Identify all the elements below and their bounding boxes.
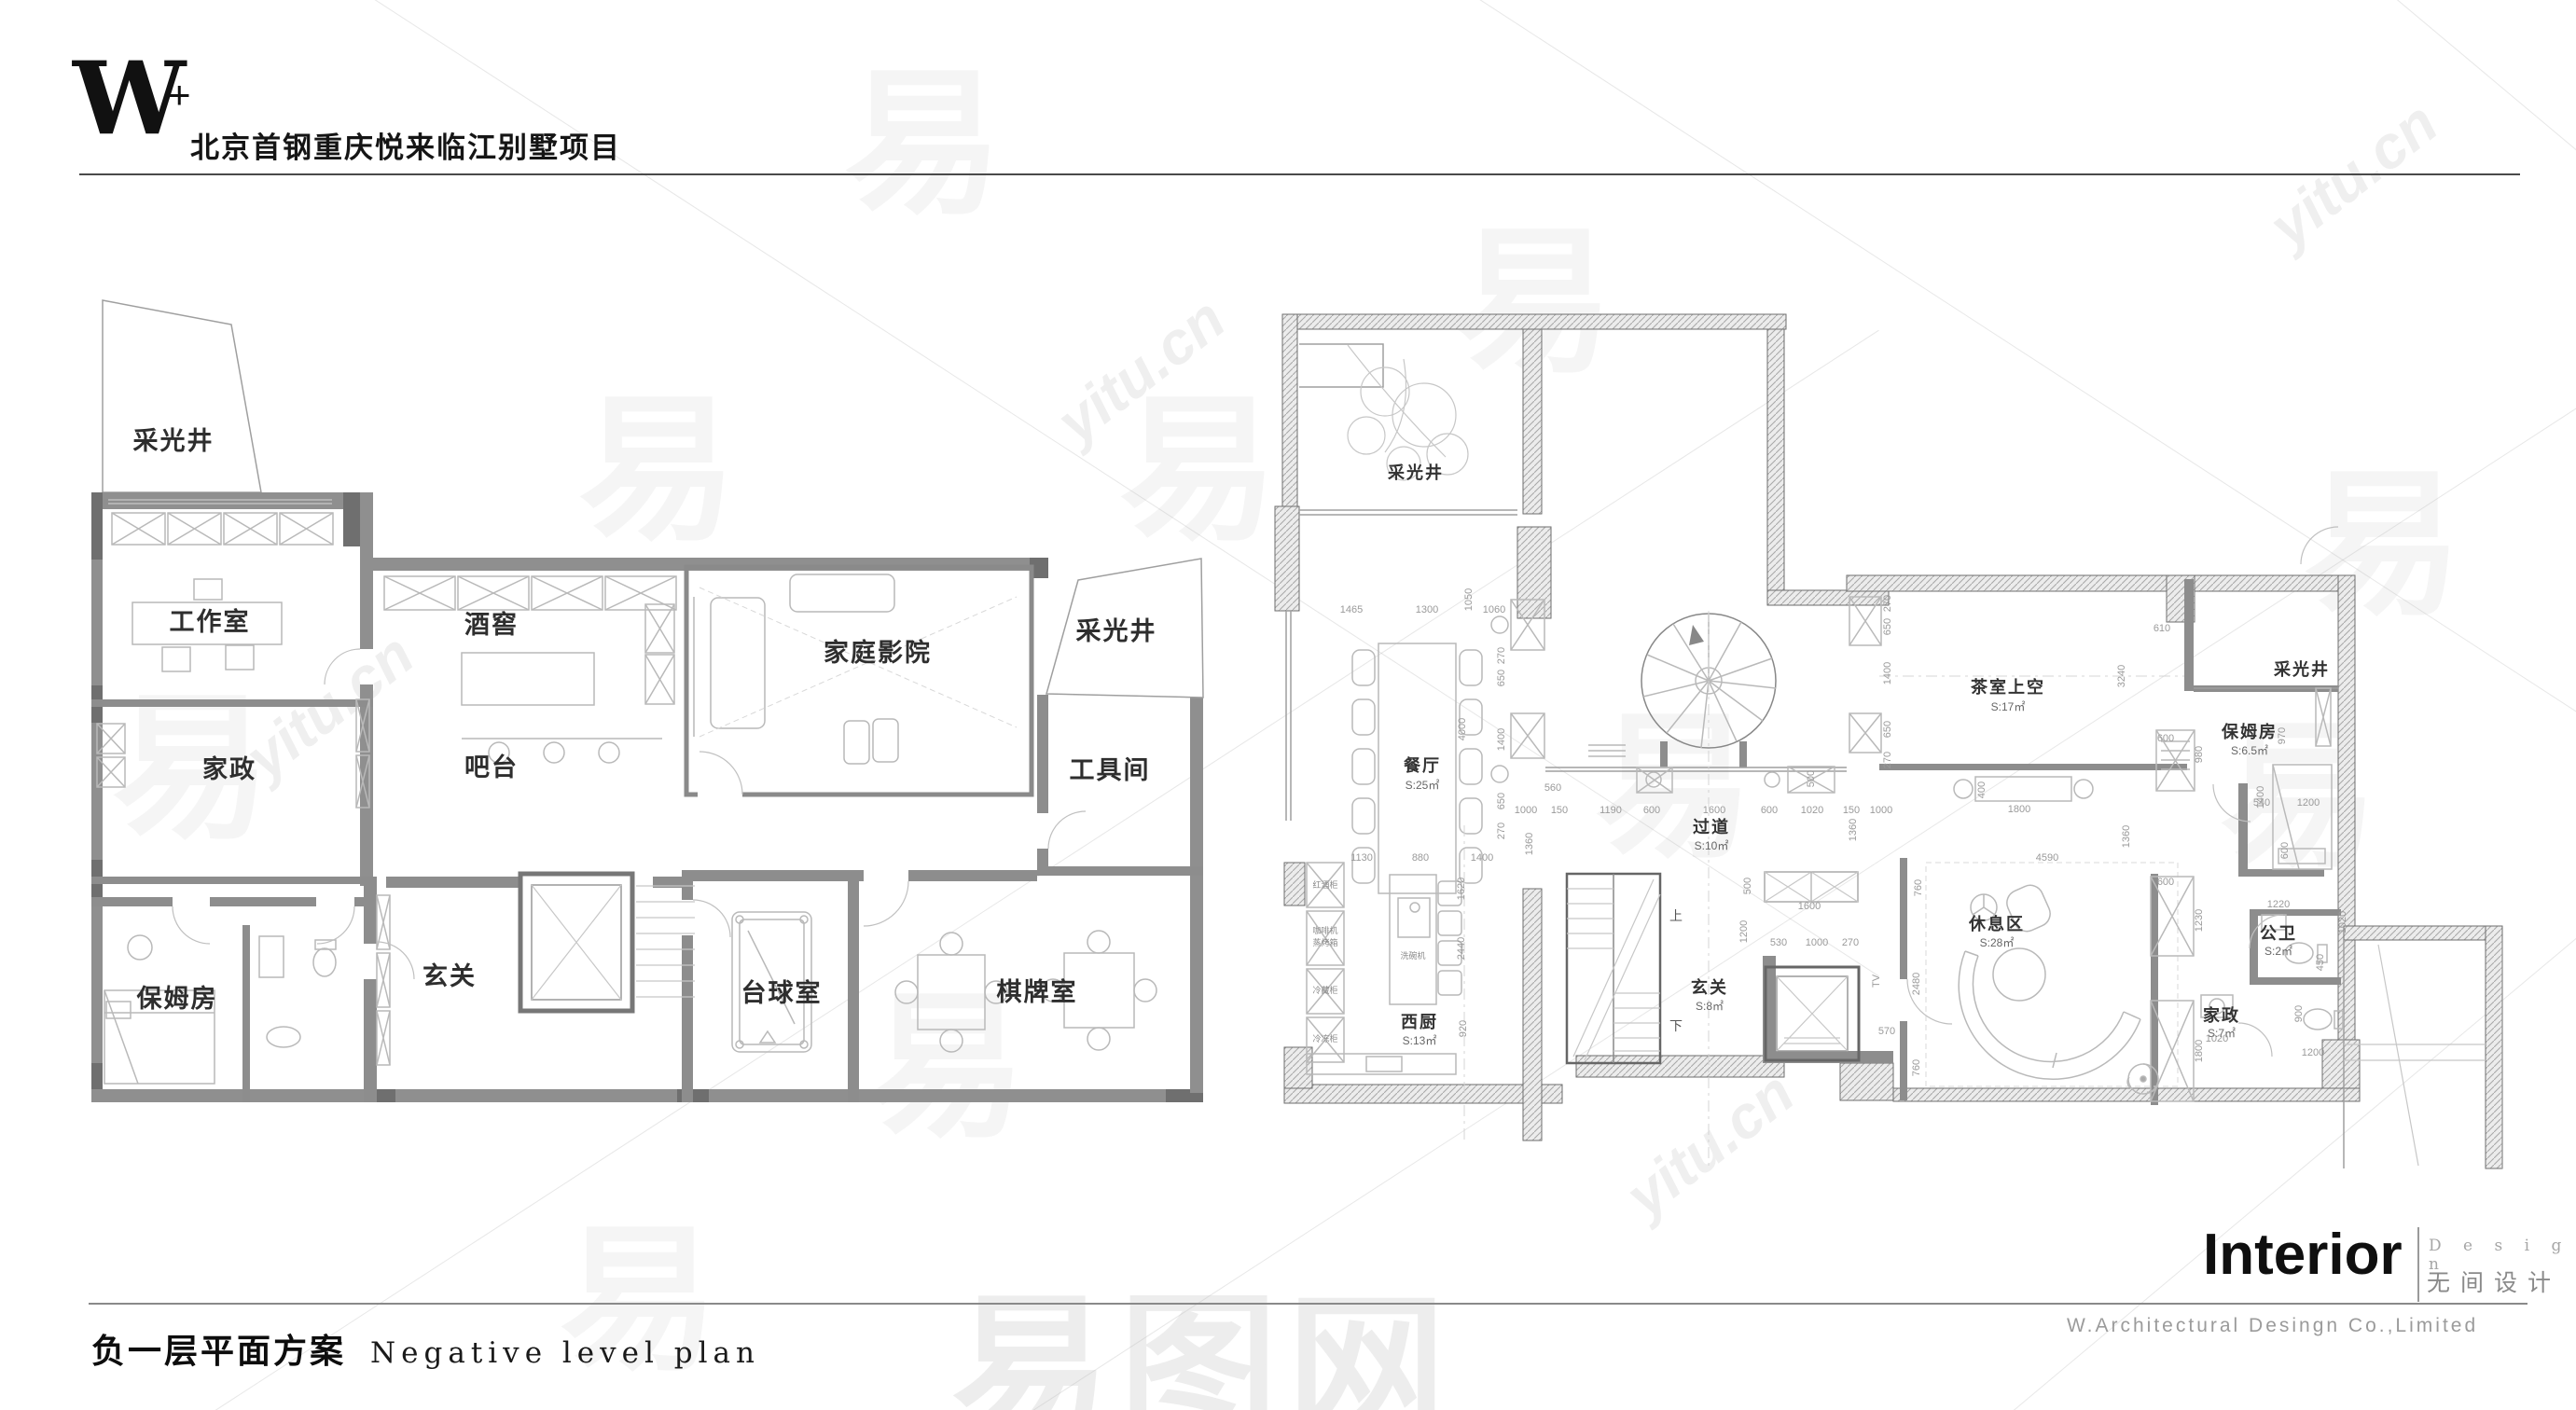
dimension-label: 600 <box>1643 805 1660 816</box>
dimension-label: 980 <box>2194 746 2205 763</box>
dimension-label: 400 <box>1976 781 1987 798</box>
room-label: 台球室 <box>741 978 823 1007</box>
dimension-label: 920 <box>1458 1020 1469 1037</box>
dimension-label: 880 <box>1412 852 1429 864</box>
dimension-label: 1360 <box>2121 825 2132 848</box>
plan-title-cn: 负一层平面方案 <box>91 1332 346 1370</box>
dimension-label: 270 <box>1842 937 1859 948</box>
dimension-label: 1800 <box>2194 1040 2205 1062</box>
brand-divider <box>2417 1227 2419 1302</box>
room-label: 西厨 <box>1401 1013 1438 1031</box>
dimension-label: 530 <box>1770 937 1787 948</box>
room-label: 家政 <box>2203 1005 2240 1025</box>
dimension-label: 1400 <box>1471 852 1493 864</box>
appliance-label: 红酒柜 <box>1312 879 1337 890</box>
dimension-label: 150 <box>1551 805 1568 816</box>
room-area: S:2㎡ <box>2264 945 2292 958</box>
room-area: S:28㎡ <box>1980 936 2015 949</box>
room-area: S:25㎡ <box>1406 779 1440 792</box>
dimension-label: 650 <box>1496 793 1507 809</box>
room-label: 玄关 <box>1691 977 1728 997</box>
dimension-label: 270 <box>1882 752 1893 768</box>
slide-canvas: 易 易 易 易 易 易 易 易 易 易 yitu.cn yitu.cn yitu… <box>0 0 2576 1410</box>
appliance-label: 冷藏柜 <box>1312 985 1337 995</box>
dimension-label: 1000 <box>1870 805 1892 816</box>
room-label: 休息区 <box>1968 914 2025 933</box>
room-label: 采光井 <box>1387 463 1444 482</box>
dimension-label: 760 <box>1911 1059 1922 1076</box>
dimension-label: 650 <box>1882 618 1893 635</box>
dimension-label: 1050 <box>1463 588 1475 611</box>
dimension-label: 600 <box>2157 877 2174 888</box>
dimension-label: 600 <box>2279 842 2291 859</box>
plan-title: 负一层平面方案Negative level plan <box>91 1324 760 1373</box>
dimension-label: 900 <box>2293 1005 2305 1022</box>
dimension-label: 1800 <box>2008 804 2030 815</box>
company-logo-plus: + <box>168 73 191 117</box>
dimension-label: 1000 <box>1806 937 1828 948</box>
left-floor-plan: 采光井 工作室 家政 保姆房 玄关 酒窖 吧台 家庭影院 采光井 工具间 台球室… <box>84 289 1212 1110</box>
dimension-label: 1600 <box>1798 901 1821 912</box>
brand-subtitle-cn: 无间设计 <box>2427 1265 2561 1298</box>
room-label: 酒窖 <box>464 610 519 639</box>
dimension-label: 600 <box>2157 733 2174 744</box>
dimension-label: 1020 <box>1801 805 1823 816</box>
appliance-label: 咖啡机 <box>1312 925 1337 935</box>
room-label: 采光井 <box>1076 617 1157 645</box>
brand-logo: Interior <box>2203 1222 2403 1288</box>
dimension-label: 1600 <box>1703 805 1725 816</box>
room-label: 家庭影院 <box>824 638 932 667</box>
dimension-label: 1020 <box>2337 911 2348 933</box>
tv-label: TV <box>1871 974 1882 988</box>
dimension-label: 1200 <box>1738 920 1750 943</box>
dimension-label: 1360 <box>1848 819 1859 841</box>
company-name: W.Architectural Desingn Co.,Limited <box>2067 1315 2478 1337</box>
room-area: S:6.5㎡ <box>2231 744 2268 757</box>
room-label: 茶室上空 <box>1971 677 2045 697</box>
right-floor-plan: 采光井 餐厅 S:25㎡ 过道 S:10㎡ 茶室上空 S:17㎡ 采光井 保姆房… <box>1273 303 2574 1226</box>
dimension-label: 270 <box>1496 822 1507 839</box>
header-divider <box>79 173 2520 175</box>
dimension-label: 450 <box>2315 954 2326 971</box>
dimension-label: 2480 <box>1911 973 1922 995</box>
dimension-label: 1020 <box>2206 1033 2228 1044</box>
dimension-label: 150 <box>1843 805 1860 816</box>
room-area: S:13㎡ <box>1403 1034 1437 1047</box>
appliance-label: 洗碗机 <box>1400 950 1425 961</box>
dimension-label: 1200 <box>2302 1047 2324 1058</box>
room-area: S:17㎡ <box>1991 700 2026 713</box>
main-stair <box>1567 874 1660 1063</box>
dimension-label: 1060 <box>1483 604 1505 615</box>
room-label: 工作室 <box>170 607 251 636</box>
room-area: S:8㎡ <box>1696 1000 1724 1013</box>
dimension-label: 1620 <box>1456 878 1467 900</box>
stair-down-label: 下 <box>1669 1018 1683 1033</box>
watermark-logo: 易图网 <box>951 1240 1455 1410</box>
dimension-label: 1000 <box>1515 805 1537 816</box>
external-stair <box>2344 945 2486 1166</box>
appliance-label: 蒸烤箱 <box>1312 937 1337 947</box>
dimension-label: 1465 <box>1340 604 1363 615</box>
room-label: 采光井 <box>133 427 215 455</box>
dimension-label: 2440 <box>1456 937 1467 960</box>
dimension-label: 1130 <box>1350 852 1373 864</box>
dimension-label: 600 <box>1761 805 1778 816</box>
room-area: S:10㎡ <box>1695 839 1729 852</box>
dimension-label: 650 <box>1882 721 1893 738</box>
dimension-label: 270 <box>1882 595 1893 612</box>
dimension-label: 4000 <box>1457 718 1468 740</box>
dimension-label: 1400 <box>1496 728 1507 751</box>
dimension-label: 610 <box>2154 623 2170 634</box>
dimension-label: 1300 <box>1416 604 1438 615</box>
room-label: 吧台 <box>464 753 519 781</box>
watermark-glyph: 易 <box>844 65 1003 224</box>
right-plan-dimensions: 1465 1300 1050 1060 270 650 1400 650 270… <box>1340 588 2348 1076</box>
left-plan-room-labels: 采光井 工作室 家政 保姆房 玄关 酒窖 吧台 家庭影院 采光井 工具间 台球室… <box>133 427 1157 1013</box>
dimension-label: 4590 <box>2036 852 2058 864</box>
dimension-label: 500 <box>1806 770 1817 787</box>
stair-up-label: 上 <box>1669 908 1683 923</box>
room-label: 采光井 <box>2273 659 2330 679</box>
dimension-label: 560 <box>1544 782 1561 794</box>
dimension-label: 1190 <box>1600 805 1622 816</box>
dimension-label: 650 <box>1496 670 1507 686</box>
dimension-label: 970 <box>2277 727 2288 744</box>
page-title: 北京首钢重庆悦来临江别墅项目 <box>190 124 621 166</box>
dimension-label: 570 <box>1878 1026 1895 1037</box>
room-label: 公卫 <box>2260 924 2297 943</box>
dimension-label: 1400 <box>1882 662 1893 684</box>
room-label: 家政 <box>202 754 256 783</box>
dimension-label: 1400 <box>2255 786 2266 809</box>
room-label: 玄关 <box>422 961 477 990</box>
room-label: 工具间 <box>1070 756 1151 784</box>
company-logo: W <box>73 48 182 149</box>
plan-title-en: Negative level plan <box>370 1336 760 1370</box>
dimension-label: 1220 <box>2267 899 2290 910</box>
room-label: 餐厅 <box>1403 755 1441 775</box>
room-label: 过道 <box>1693 817 1730 836</box>
dimension-label: 500 <box>1742 878 1753 894</box>
dimension-label: 1200 <box>2297 797 2320 809</box>
dimension-label: 1360 <box>1524 833 1535 855</box>
dimension-label: 3240 <box>2116 665 2127 687</box>
room-label: 保姆房 <box>2221 722 2278 741</box>
room-label: 棋牌室 <box>997 977 1078 1006</box>
dimension-label: 270 <box>1496 647 1507 664</box>
footer-divider <box>89 1303 2528 1305</box>
appliance-label: 冷冻柜 <box>1312 1033 1337 1044</box>
dimension-label: 760 <box>1913 879 1924 896</box>
lounge-furniture <box>1926 863 2178 1094</box>
dimension-label: 1230 <box>2194 909 2205 932</box>
room-label: 保姆房 <box>136 985 218 1013</box>
